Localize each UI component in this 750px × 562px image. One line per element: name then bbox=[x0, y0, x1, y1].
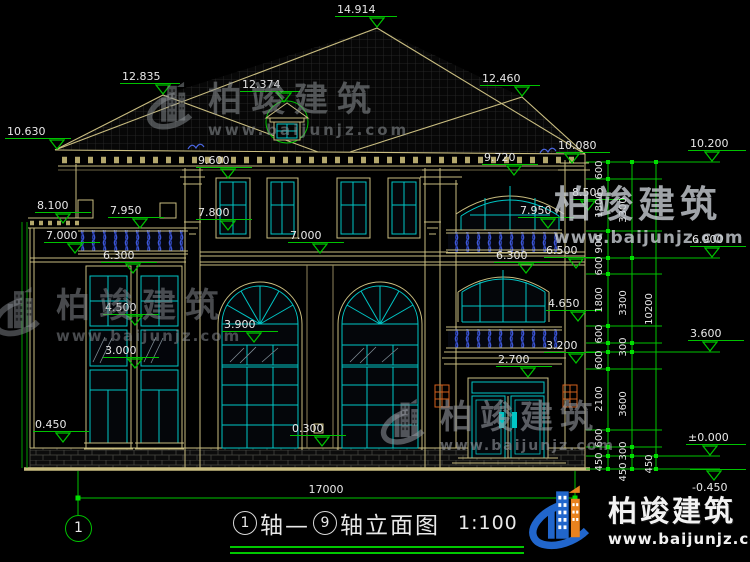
elevation-triangle-icon bbox=[568, 353, 584, 364]
elevation-triangle-icon bbox=[49, 139, 65, 150]
elevation-triangle-icon bbox=[706, 470, 722, 481]
elevation-marker: 3.900 bbox=[222, 318, 278, 343]
elevation-marker: 6.300 bbox=[101, 249, 157, 274]
elevation-marker: 7.950 bbox=[518, 204, 574, 229]
title-underline bbox=[230, 546, 524, 548]
chain-dim-label: 450 bbox=[617, 450, 631, 494]
elevation-triangle-icon bbox=[127, 358, 143, 369]
wall-lamp bbox=[435, 385, 449, 407]
elevation-marker: ±0.000 bbox=[686, 431, 746, 456]
elevation-marker: 6.900 bbox=[690, 233, 746, 258]
elevation-triangle-icon bbox=[506, 165, 522, 176]
elevation-triangle-icon bbox=[704, 247, 720, 258]
cad-elevation-drawing: 14.91412.83512.37412.46010.63010.0809.60… bbox=[0, 0, 750, 562]
elevation-marker: 6.500 bbox=[544, 244, 600, 269]
door-handle bbox=[512, 412, 517, 428]
elevation-triangle-icon bbox=[704, 151, 720, 162]
door-handle bbox=[499, 412, 504, 428]
elevation-marker: 3.200 bbox=[544, 339, 600, 364]
elevation-triangle-icon bbox=[369, 17, 385, 28]
elevation-marker: 0.450 bbox=[33, 418, 89, 443]
elevation-marker: 12.374 bbox=[240, 78, 300, 103]
elevation-marker: 8.100 bbox=[35, 199, 91, 224]
elevation-marker: 7.000 bbox=[288, 229, 344, 254]
title-scale: 1:100 bbox=[458, 512, 518, 534]
title-axis-end-bubble: 9 bbox=[313, 511, 337, 535]
title-axis-start-bubble: 1 bbox=[233, 511, 257, 535]
elevation-marker: 9.720 bbox=[482, 151, 538, 176]
elevation-marker: 9.600 bbox=[196, 154, 252, 179]
title-text: 轴— bbox=[260, 506, 310, 540]
elevation-marker: 3.600 bbox=[688, 327, 744, 352]
drawing-title: 1 轴— 9 轴立面图 1:100 bbox=[230, 506, 518, 540]
roof bbox=[55, 28, 585, 170]
elevation-marker: 6.300 bbox=[494, 249, 550, 274]
chain-dim-label: 450 bbox=[593, 440, 607, 484]
chain-dim-label: 3600 bbox=[617, 382, 631, 426]
elevation-triangle-icon bbox=[55, 213, 71, 224]
elevation-marker: 12.460 bbox=[480, 72, 540, 97]
second-floor-window bbox=[458, 270, 549, 322]
chain-dim-label: 3300 bbox=[617, 281, 631, 325]
elevation-triangle-icon bbox=[155, 84, 171, 95]
elevation-triangle-icon bbox=[55, 432, 71, 443]
elevation-triangle-icon bbox=[520, 367, 536, 378]
chain-dim-label: 1800 bbox=[593, 183, 607, 227]
elevation-triangle-icon bbox=[220, 220, 236, 231]
elevation-triangle-icon bbox=[220, 168, 236, 179]
elevation-marker: 10.630 bbox=[5, 125, 71, 150]
overall-width-dim: 17000 bbox=[296, 483, 356, 496]
title-text-suffix: 轴立面图 bbox=[340, 506, 440, 540]
elevation-triangle-icon bbox=[246, 332, 262, 343]
elevation-triangle-icon bbox=[564, 153, 580, 164]
elevation-triangle-icon bbox=[570, 311, 586, 322]
elevation-triangle-icon bbox=[132, 218, 148, 229]
chain-dim-label: 450 bbox=[643, 442, 657, 486]
title-underline bbox=[230, 552, 524, 554]
elevation-marker: 7.950 bbox=[108, 204, 164, 229]
elevation-marker: 10.200 bbox=[688, 137, 746, 162]
elevation-triangle-icon bbox=[67, 243, 83, 254]
chain-dim-label: 10200 bbox=[643, 287, 657, 331]
elevation-triangle-icon bbox=[314, 436, 330, 447]
elevation-triangle-icon bbox=[702, 341, 718, 352]
axis-bubble-1: 1 bbox=[65, 515, 92, 542]
elevation-triangle-icon bbox=[125, 263, 141, 274]
chain-dim-label: 2100 bbox=[593, 377, 607, 421]
elevation-triangle-icon bbox=[276, 92, 292, 103]
elevation-triangle-icon bbox=[702, 445, 718, 456]
elevation-marker: 4.500 bbox=[103, 301, 159, 326]
elevation-triangle-icon bbox=[518, 263, 534, 274]
elevation-marker: 3.000 bbox=[103, 344, 159, 369]
elevation-triangle-icon bbox=[312, 243, 328, 254]
elevation-triangle-icon bbox=[514, 86, 530, 97]
chain-dim-label: 600 bbox=[593, 338, 607, 382]
elevation-marker: 7.000 bbox=[44, 229, 100, 254]
upper-window bbox=[388, 178, 420, 238]
elevation-marker: -0.450 bbox=[690, 469, 746, 494]
elevation-triangle-icon bbox=[568, 258, 584, 269]
elevation-marker: 2.700 bbox=[496, 353, 552, 378]
elevation-marker: 0.300 bbox=[290, 422, 346, 447]
building-linework bbox=[0, 0, 750, 562]
elevation-marker: 7.800 bbox=[196, 206, 252, 231]
dormer-vent bbox=[266, 101, 308, 143]
elevation-triangle-icon bbox=[540, 218, 556, 229]
elevation-triangle-icon bbox=[127, 315, 143, 326]
entry-door bbox=[468, 378, 548, 458]
elevation-marker: 14.914 bbox=[335, 3, 397, 28]
chain-dim-label: 3300 bbox=[617, 188, 631, 232]
elevation-marker: 12.835 bbox=[120, 70, 180, 95]
chain-dim-label: 300 bbox=[617, 325, 631, 369]
arched-window bbox=[338, 282, 422, 450]
